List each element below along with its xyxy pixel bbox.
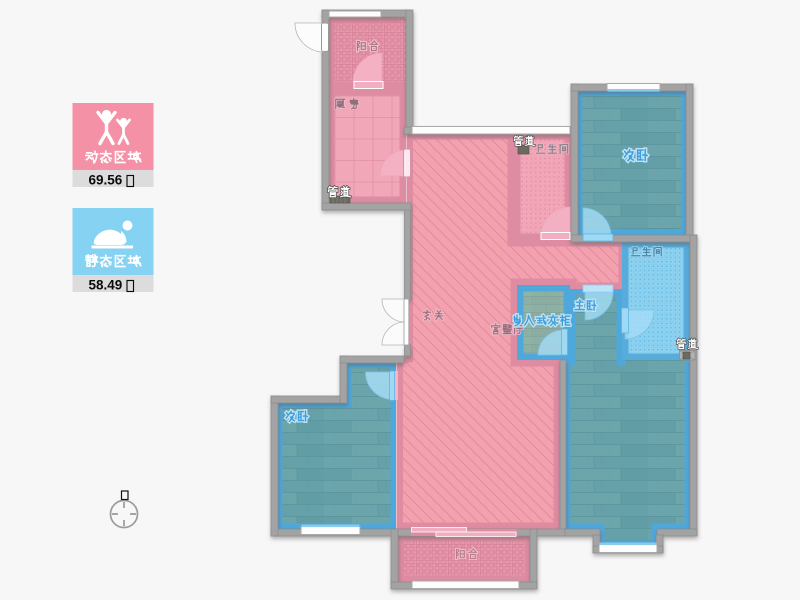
svg-text:58.49: 58.49 <box>89 278 123 293</box>
svg-text:69.56: 69.56 <box>89 173 123 188</box>
